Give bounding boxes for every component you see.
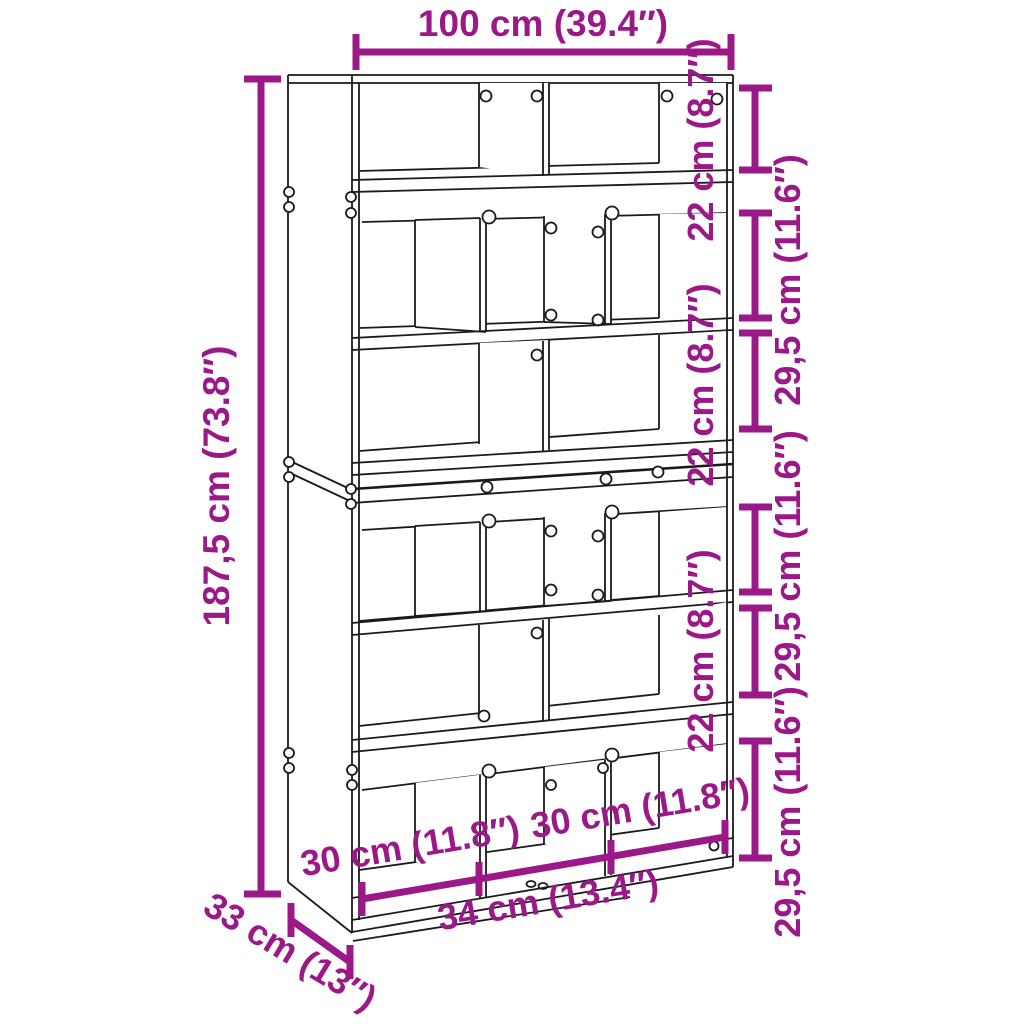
row-1 (359, 83, 727, 176)
dimension-depth: 33 cm (13″) (197, 884, 384, 1019)
row-4-height-label: 29,5 cm (11.6″) (767, 430, 808, 681)
dimension-left-height: 187,5 cm (73.8″) (196, 79, 281, 894)
row-6-height-label: 29,5 cm (11.6″) (767, 686, 808, 937)
dimension-diagram-page: 100 cm (39.4″) 187,5 cm (73.8″) (0, 0, 1024, 1024)
row-4 (359, 506, 727, 622)
dimension-top-width: 100 cm (39.4″) (356, 3, 731, 70)
row-2 (359, 207, 727, 333)
unit-seam (352, 464, 733, 503)
top-width-label: 100 cm (39.4″) (418, 3, 668, 44)
dimension-bottom-compartments: 30 cm (11.8″) 30 cm (11.8″) 34 cm (13.4″… (297, 769, 752, 938)
row-3 (359, 331, 727, 451)
left-side-panel (288, 75, 352, 933)
side-panel-holes (284, 187, 357, 790)
row-2-height-label: 29,5 cm (11.6″) (767, 154, 808, 405)
top-panel (288, 75, 733, 83)
left-height-label: 187,5 cm (73.8″) (196, 345, 237, 626)
bookcase-dimension-diagram: 100 cm (39.4″) 187,5 cm (73.8″) (0, 0, 1024, 1024)
row-3-height-label: 22 cm (8.7″) (680, 283, 721, 486)
bottom-left-compartment-label: 30 cm (11.8″) (297, 807, 522, 884)
row-5-height-label: 22 cm (8.7″) (680, 549, 721, 752)
row-1-height-label: 22 cm (8.7″) (680, 38, 721, 241)
